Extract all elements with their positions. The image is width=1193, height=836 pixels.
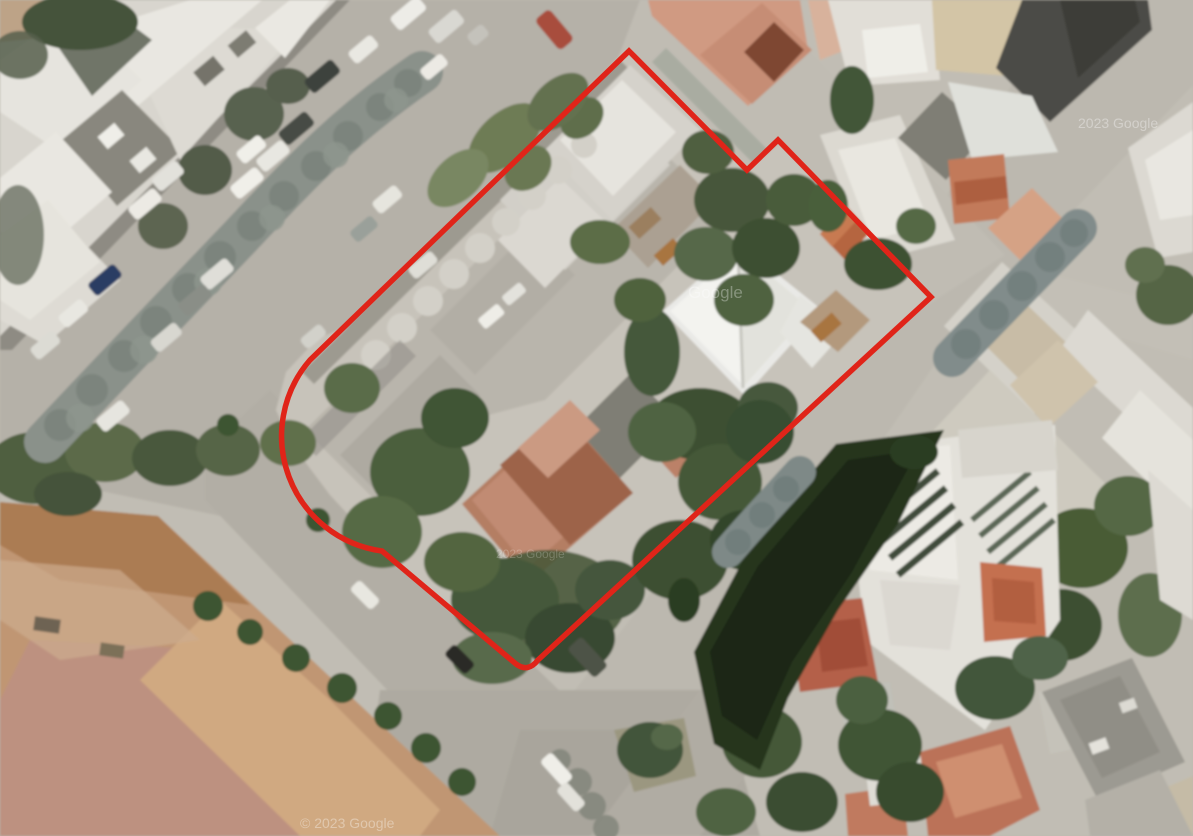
svg-text:2023 Google: 2023 Google — [1078, 115, 1158, 131]
svg-text:Google: Google — [688, 283, 743, 302]
svg-text:© 2023 Google: © 2023 Google — [300, 815, 395, 831]
svg-text:2023 Google: 2023 Google — [496, 547, 565, 561]
